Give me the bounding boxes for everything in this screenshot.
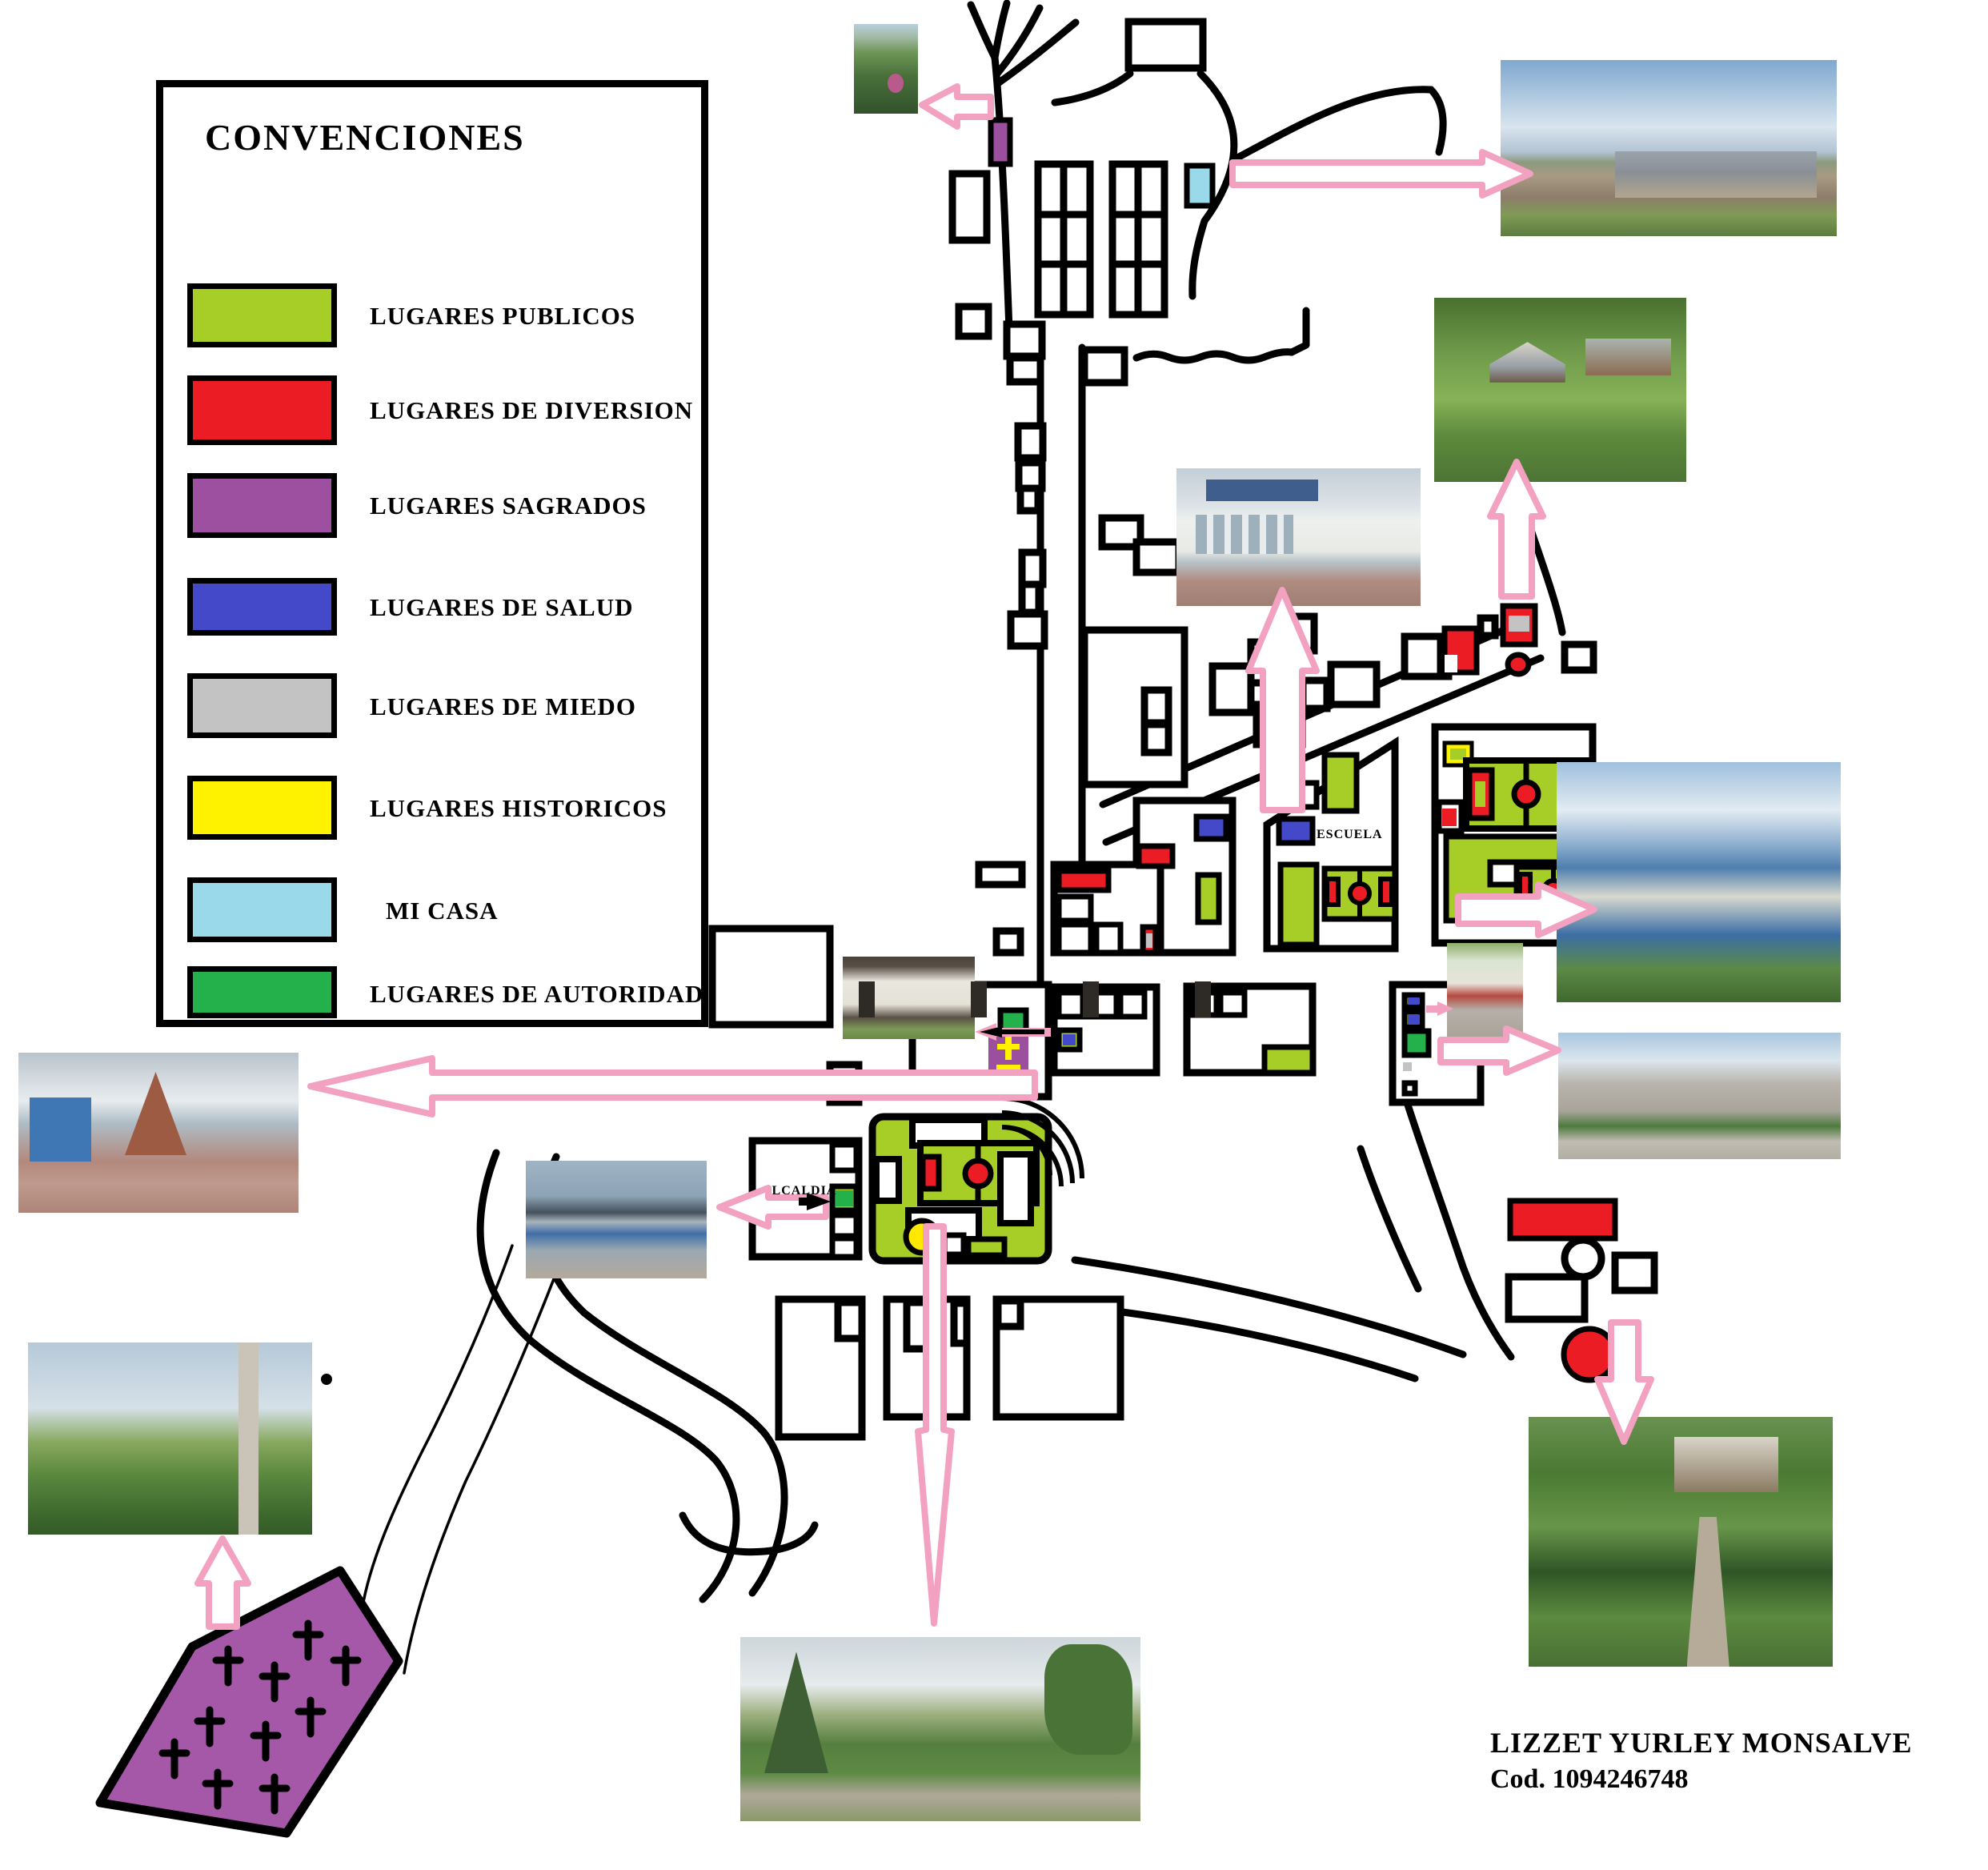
signature-block: LIZZET YURLEY MONSALVE Cod. 1094246748 (1490, 1726, 1912, 1795)
autoridad-marker-east (1405, 1031, 1429, 1055)
road-southeast-jag-2 (1361, 1149, 1418, 1289)
micasa-swatch (187, 877, 337, 942)
photo-alcaldia (526, 1161, 707, 1278)
red-circle-small (1508, 655, 1529, 674)
escuela-salud-marker (1279, 819, 1313, 843)
photo-vegetation (1529, 1417, 1833, 1667)
escuela-block: ESCUELA (1267, 743, 1395, 949)
red-building-south (1510, 1201, 1615, 1238)
river-lines (362, 1246, 562, 1673)
photo-garden-shrine (854, 24, 918, 114)
sagrados-swatch (187, 473, 337, 538)
photo-corner-house (1447, 943, 1523, 1039)
salud-label: LUGARES DE SALUD (370, 593, 634, 622)
sagrado-marker-top (991, 120, 1010, 164)
cemetery (100, 1571, 399, 1833)
miedo-gray-inset (1509, 616, 1529, 632)
white-circle (1565, 1240, 1601, 1277)
historicos-label: LUGARES HISTORICOS (370, 794, 667, 823)
church-tower (996, 1065, 1020, 1097)
micasa-label: MI CASA (386, 897, 498, 925)
escuela-soccer-field (1325, 869, 1395, 919)
miedo-label: LUGARES DE MIEDO (370, 692, 636, 721)
photo-hill (28, 1342, 312, 1535)
photo-rural-houses (1501, 60, 1837, 236)
salud-marker (1196, 817, 1226, 839)
s-road-bottom-hook (683, 1515, 815, 1552)
historicos-swatch (187, 776, 337, 840)
author-code: Cod. 1094246748 (1490, 1764, 1912, 1795)
photo-escuela (1176, 468, 1421, 606)
diversion-label: LUGARES DE DIVERSION (370, 396, 693, 425)
salud-swatch (187, 578, 337, 636)
escuela-label: ESCUELA (1317, 828, 1383, 841)
legend-box: CONVENCIONES LUGARES PUBLICOS LUGARES DE… (156, 80, 708, 1027)
autoridad-label: LUGARES DE AUTORIDAD (370, 980, 703, 1009)
photo-palacio-municipal (1558, 1033, 1841, 1159)
alcaldia-label: ALCALDIA (762, 1184, 836, 1198)
grid-block-west (1038, 164, 1090, 315)
block-top (1128, 22, 1203, 68)
photo-old-white-house (843, 957, 975, 1039)
photo-church (18, 1053, 299, 1213)
photo-colegio (1557, 762, 1841, 1002)
publicos-swatch (187, 283, 337, 347)
legend-title: CONVENCIONES (205, 116, 525, 159)
grid-block-east (1112, 164, 1164, 315)
community-map-page: ESCUELA (0, 0, 1988, 1870)
red-circle-south (1564, 1329, 1615, 1380)
road-northeast (1239, 90, 1443, 157)
autoridad-swatch (187, 966, 337, 1018)
photo-park (740, 1637, 1140, 1821)
mi-casa-marker (1187, 166, 1212, 206)
alcaldia-building-marker (836, 1190, 853, 1206)
small-dot (321, 1374, 332, 1385)
miedo-swatch (187, 673, 337, 738)
plaza-block (872, 1098, 1082, 1261)
road-top-curve-left (1055, 74, 1130, 102)
road-southeast-jag (1407, 1102, 1511, 1357)
diversion-swatch (187, 375, 337, 445)
photo-farm (1434, 298, 1686, 482)
author-name: LIZZET YURLEY MONSALVE (1490, 1726, 1912, 1760)
sagrados-label: LUGARES SAGRADOS (370, 492, 647, 520)
alcaldia-strip (832, 1145, 856, 1257)
publicos-label: LUGARES PUBLICOS (370, 302, 635, 331)
